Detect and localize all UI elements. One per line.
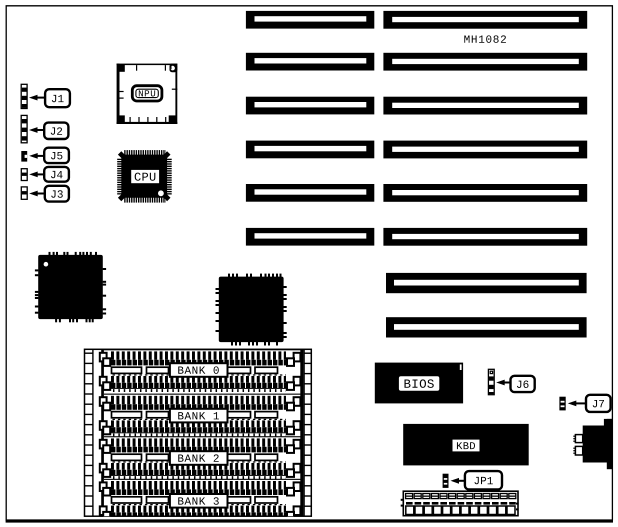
svg-text:BANK 2: BANK 2	[177, 454, 220, 466]
svg-text:J4: J4	[50, 170, 64, 182]
svg-text:J6: J6	[516, 380, 529, 392]
svg-text:BIOS: BIOS	[403, 378, 434, 392]
svg-text:KBD: KBD	[456, 441, 476, 453]
svg-text:J5: J5	[50, 151, 63, 163]
svg-text:J1: J1	[51, 94, 65, 106]
svg-text:BANK 3: BANK 3	[177, 497, 220, 509]
svg-text:BANK 1: BANK 1	[177, 411, 220, 423]
svg-text:NPU: NPU	[138, 88, 156, 99]
svg-text:CPU: CPU	[134, 171, 157, 185]
svg-text:J3: J3	[50, 190, 63, 202]
svg-text:MH1082: MH1082	[464, 35, 508, 47]
svg-text:BANK 0: BANK 0	[177, 366, 220, 378]
svg-text:JP1: JP1	[474, 476, 494, 488]
svg-text:J2: J2	[50, 127, 63, 139]
svg-text:J7: J7	[592, 399, 605, 411]
